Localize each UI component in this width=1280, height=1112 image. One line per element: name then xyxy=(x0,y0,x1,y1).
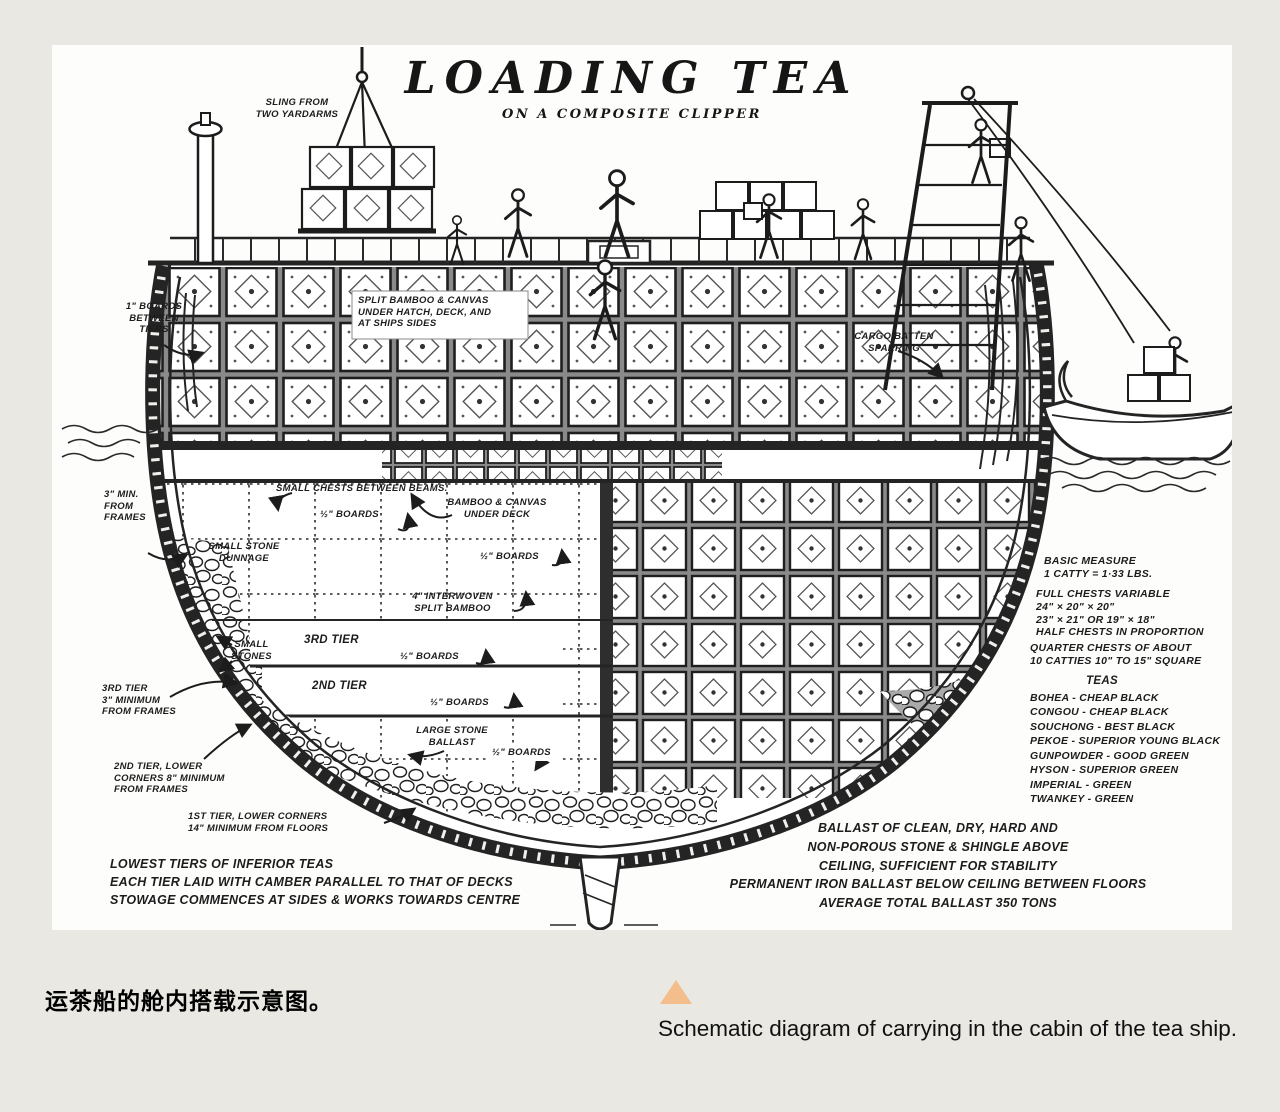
label-quarter-chests: QUARTER CHESTS OF ABOUT 10 CATTIES 10" T… xyxy=(1030,642,1215,668)
hatch-coaming xyxy=(588,241,650,263)
center-stanchion xyxy=(600,483,613,805)
water-right xyxy=(1038,458,1230,492)
label-half-boards-4: ½" BOARDS xyxy=(430,697,510,709)
label-second-tier: 2ND TIER xyxy=(312,679,392,693)
label-teas-list: BOHEA - CHEAP BLACK CONGOU - CHEAP BLACK… xyxy=(1030,691,1230,807)
deck-chest-stack xyxy=(700,182,834,239)
label-half-boards-1: ½" BOARDS xyxy=(320,509,400,521)
caption-chinese: 运茶船的舱内搭载示意图。 xyxy=(45,982,333,1016)
label-min-from-frames: 3" MIN. FROM FRAMES xyxy=(104,489,174,524)
diagram-subtitle: ON A COMPOSITE CLIPPER xyxy=(382,107,882,122)
label-lowest-tiers: LOWEST TIERS OF INFERIOR TEAS EACH TIER … xyxy=(110,855,620,909)
label-ballast-note: BALLAST OF CLEAN, DRY, HARD AND NON-PORO… xyxy=(697,819,1179,913)
label-half-boards-3: ½" BOARDS xyxy=(400,651,480,663)
label-interwoven: 4" INTERWOVEN SPLIT BAMBOO xyxy=(390,591,515,614)
label-half-boards-2: ½" BOARDS xyxy=(480,551,560,563)
label-first-tier-min: 1ST TIER, LOWER CORNERS 14" MINIMUM FROM… xyxy=(188,811,363,834)
label-third-tier-min: 3RD TIER 3" MINIMUM FROM FRAMES xyxy=(102,683,212,718)
label-large-stone-ballast: LARGE STONE BALLAST xyxy=(402,723,502,750)
label-boards-between-tiers: 1" BOARDS BETWEEN TIERS xyxy=(108,301,200,336)
diagram-panel: LOADING TEA ON A COMPOSITE CLIPPER SLING… xyxy=(52,45,1232,930)
caption-english-block: Schematic diagram of carrying in the cab… xyxy=(658,980,1238,1046)
label-half-boards-5: ½" BOARDS xyxy=(488,745,560,761)
label-small-chests: SMALL CHESTS BETWEEN BEAMS. xyxy=(276,483,486,495)
label-full-chests: FULL CHESTS VARIABLE 24" × 20" × 20" 23"… xyxy=(1036,588,1211,639)
upper-hold-chests xyxy=(142,267,1062,443)
boat xyxy=(1044,347,1232,459)
deck-beam-band xyxy=(142,441,1062,450)
label-small-stone-dunnage: SMALL STONE DUNNAGE xyxy=(198,541,290,564)
label-cargo-batten: CARGO BATTEN SPARRING xyxy=(842,331,946,354)
label-bamboo-canvas-deck: BAMBOO & CANVAS UNDER DECK xyxy=(432,497,562,520)
deck xyxy=(148,238,1054,263)
diagram-title: LOADING TEA xyxy=(382,53,882,104)
caption-english: Schematic diagram of carrying in the cab… xyxy=(658,1012,1238,1046)
label-sling: SLING FROM TWO YARDARMS xyxy=(242,97,352,120)
small-chests-between-beams xyxy=(382,450,722,481)
caption-marker-triangle xyxy=(660,980,692,1004)
label-basic-measure: BASIC MEASURE 1 CATTY = 1·33 LBS. xyxy=(1044,555,1204,581)
label-second-tier-min: 2ND TIER, LOWER CORNERS 8" MINIMUM FROM … xyxy=(114,761,248,796)
label-split-bamboo-hatch: SPLIT BAMBOO & CANVAS UNDER HATCH, DECK,… xyxy=(358,295,524,330)
label-small-stones: SMALL STONES xyxy=(224,639,279,662)
label-third-tier: 3RD TIER xyxy=(304,633,384,647)
page: { "colors":{"page_bg":"#e9e8e2","panel_b… xyxy=(0,0,1280,1112)
label-teas-title: TEAS xyxy=(1067,674,1137,688)
water-left xyxy=(62,426,158,461)
